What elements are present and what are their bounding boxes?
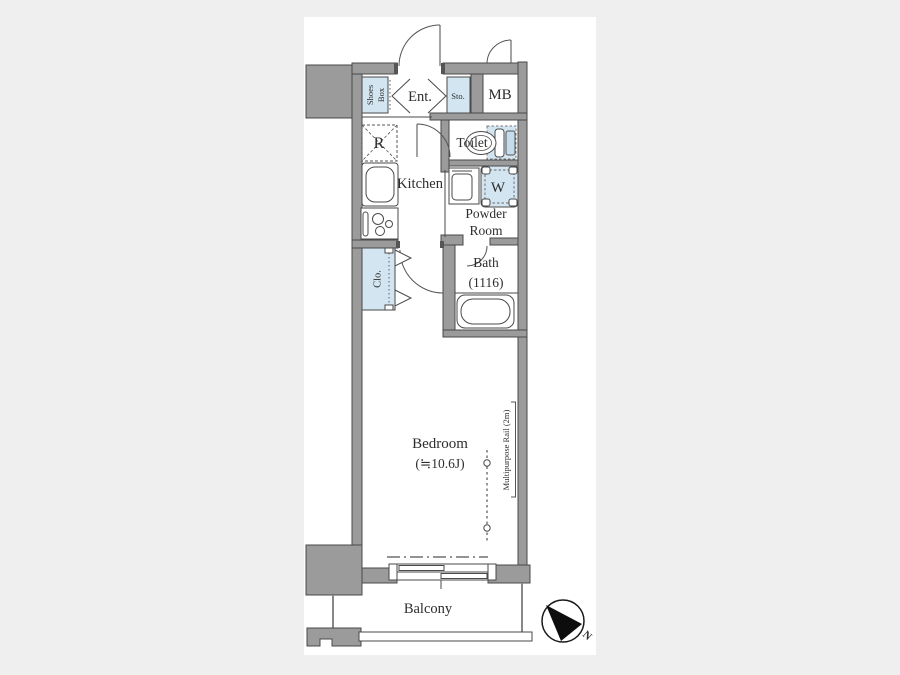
bedroom-label-1: Bedroom (412, 436, 468, 452)
bedroom-label-2: (≒10.6J) (415, 456, 464, 471)
bathtub-icon (457, 295, 514, 328)
stove-icon (361, 208, 398, 239)
wall-segment (352, 63, 397, 74)
entrance-label: Ent. (408, 89, 432, 105)
rail-hook-icon (484, 460, 490, 466)
shoes-box-label-2: Box (376, 87, 386, 102)
powder-room-label-2: Room (469, 223, 503, 238)
powder-room-area (449, 166, 518, 207)
closet-pipe-bracket (385, 305, 393, 310)
wall-segment (352, 240, 398, 248)
storage-label: Sto. (451, 91, 464, 101)
closet-label: Clo. (373, 270, 384, 288)
wall-segment (430, 113, 527, 120)
wall-segment (352, 63, 362, 545)
closet-pipe-bracket (385, 248, 393, 253)
floor-plan-image: N Shoes Box Ent. Sto. MB R Kitchen Toile… (0, 0, 900, 675)
wall-segment (443, 245, 455, 337)
refrigerator-label: R (374, 135, 385, 152)
door-jamb (441, 63, 445, 74)
wall-segment (490, 238, 518, 245)
kitchen-sink-icon (362, 163, 398, 206)
wall-segment (471, 74, 483, 113)
wall-segment (443, 63, 527, 74)
bath-area (455, 293, 518, 328)
wall-segment (306, 545, 362, 595)
shoes-box-label-1: Shoes (365, 85, 375, 105)
meter-box-label: MB (488, 87, 511, 103)
door-jamb (394, 63, 398, 74)
balcony-rail (359, 632, 532, 641)
kitchen-label: Kitchen (397, 176, 444, 192)
balcony-label: Balcony (404, 601, 453, 617)
bath-label-1: Bath (473, 255, 499, 270)
wall-segment (441, 235, 463, 245)
door-jamb (396, 241, 400, 248)
toilet-label: Toilet (456, 135, 488, 150)
door-jamb (440, 241, 444, 248)
wall-segment (443, 330, 527, 337)
rail-label: Multipurpose Rail (2m) (501, 409, 511, 490)
toilet-cabinet-icon (506, 131, 515, 155)
washer-label: W (491, 180, 506, 196)
wall-segment (449, 160, 518, 166)
wall-segment (518, 62, 527, 583)
bath-label-2: (1116) (469, 275, 504, 290)
washbasin-icon (449, 168, 479, 204)
rail-hook-icon (484, 525, 490, 531)
powder-room-label-1: Powder (465, 206, 507, 221)
balcony-end-block (307, 628, 361, 646)
